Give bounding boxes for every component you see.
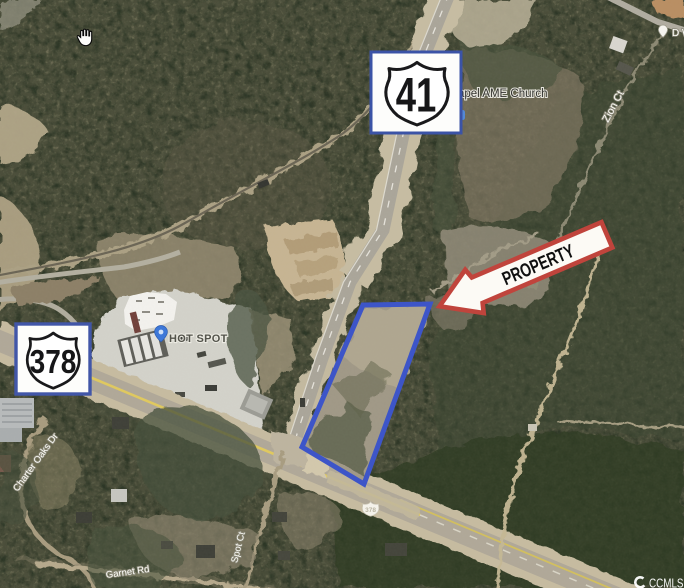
svg-text:41: 41 — [396, 69, 437, 123]
svg-text:D W: D W — [672, 28, 684, 39]
svg-text:378: 378 — [365, 507, 376, 514]
svg-text:HOT SPOT: HOT SPOT — [169, 333, 228, 345]
svg-text:378: 378 — [30, 344, 77, 381]
svg-text:apel AME Church: apel AME Church — [458, 88, 548, 100]
svg-text:CCMLS: CCMLS — [649, 577, 684, 588]
